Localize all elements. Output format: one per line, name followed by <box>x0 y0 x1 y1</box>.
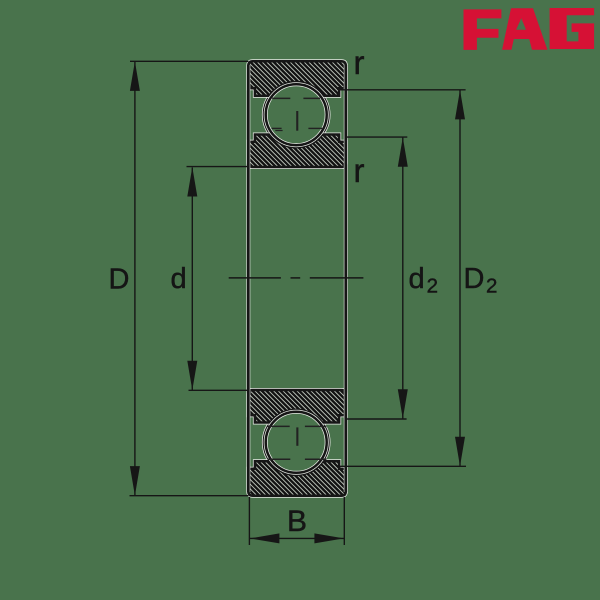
svg-text:r: r <box>354 152 365 189</box>
svg-text:r: r <box>354 44 365 81</box>
svg-text:D: D <box>109 263 130 295</box>
svg-text:B: B <box>287 505 307 538</box>
svg-text:d: d <box>171 263 187 295</box>
